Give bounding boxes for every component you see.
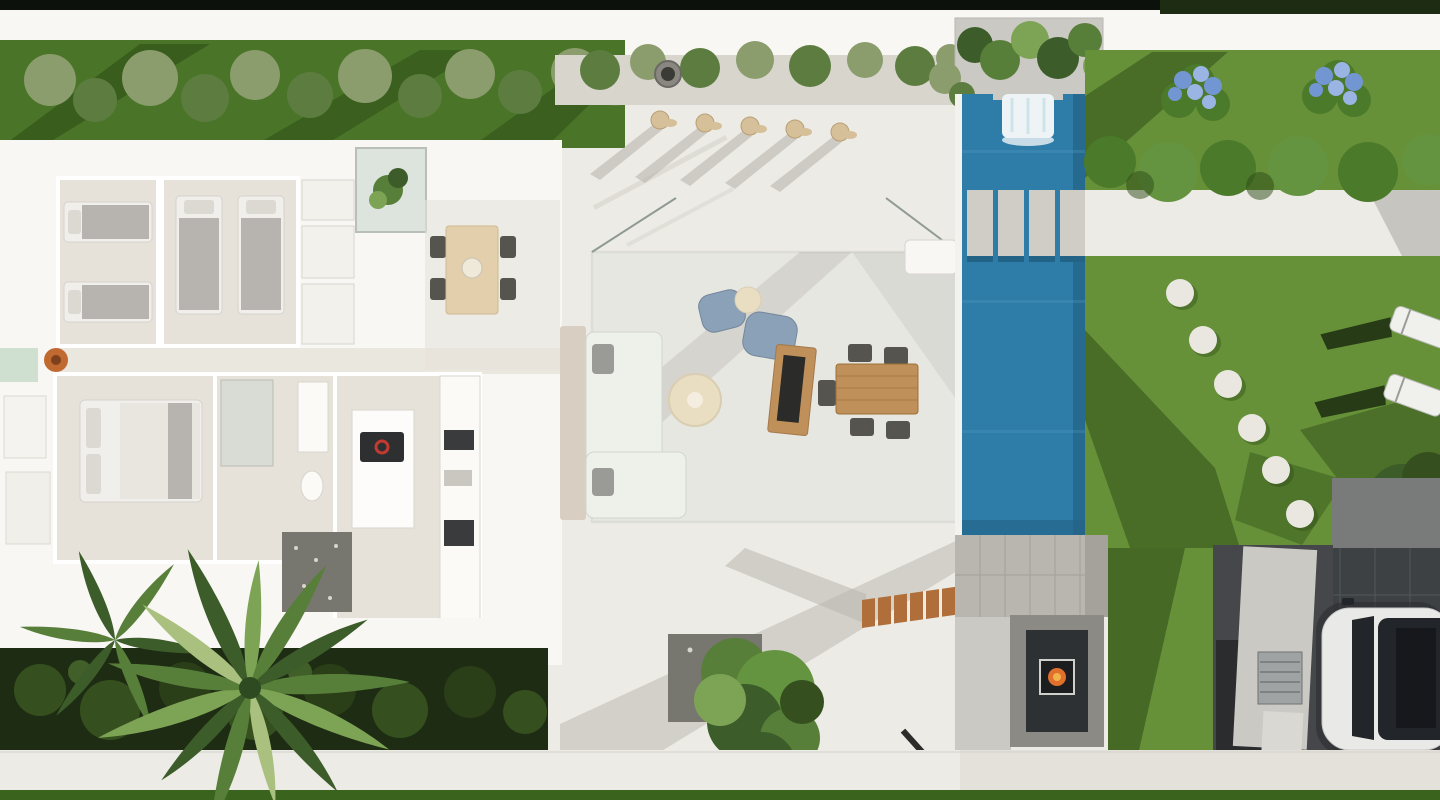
side-room bbox=[6, 472, 50, 544]
top-left-garden bbox=[0, 40, 633, 148]
right-garden bbox=[1084, 50, 1440, 550]
bed bbox=[176, 196, 222, 314]
glass-atrium bbox=[356, 148, 426, 232]
indoor-dining bbox=[425, 200, 560, 370]
mint-panel bbox=[0, 348, 38, 382]
pool-deck-paving bbox=[955, 535, 1108, 617]
bench bbox=[905, 240, 957, 274]
tv-console bbox=[768, 344, 817, 436]
courtyard-gravel bbox=[282, 532, 352, 612]
kitchen-island bbox=[352, 410, 414, 528]
wardrobes bbox=[302, 180, 354, 344]
kitchen-counter bbox=[440, 376, 480, 620]
pool-water bbox=[962, 94, 1085, 536]
car bbox=[1316, 598, 1440, 759]
bed bbox=[64, 282, 152, 322]
master-bedroom bbox=[55, 374, 215, 562]
bed bbox=[238, 196, 284, 314]
bedroom-1 bbox=[58, 178, 158, 346]
aerial-villa-render bbox=[0, 0, 1440, 800]
driveway-lawn-strip bbox=[1108, 548, 1213, 768]
pool-coping-left bbox=[955, 94, 962, 536]
palm-crown bbox=[239, 677, 261, 699]
outdoor-kitchen bbox=[1213, 545, 1333, 778]
car-windshield bbox=[1352, 616, 1374, 740]
fire-bowl bbox=[655, 61, 681, 87]
bed bbox=[64, 202, 152, 242]
outdoor-fireplace bbox=[1010, 615, 1104, 747]
scene-canvas bbox=[0, 0, 1440, 800]
induction-hob bbox=[360, 432, 404, 462]
bedroom-2 bbox=[162, 178, 298, 346]
grill bbox=[1258, 652, 1302, 704]
hallway bbox=[56, 348, 560, 374]
villa-building bbox=[0, 140, 562, 665]
side-room bbox=[4, 396, 46, 458]
kitchen bbox=[335, 374, 480, 620]
